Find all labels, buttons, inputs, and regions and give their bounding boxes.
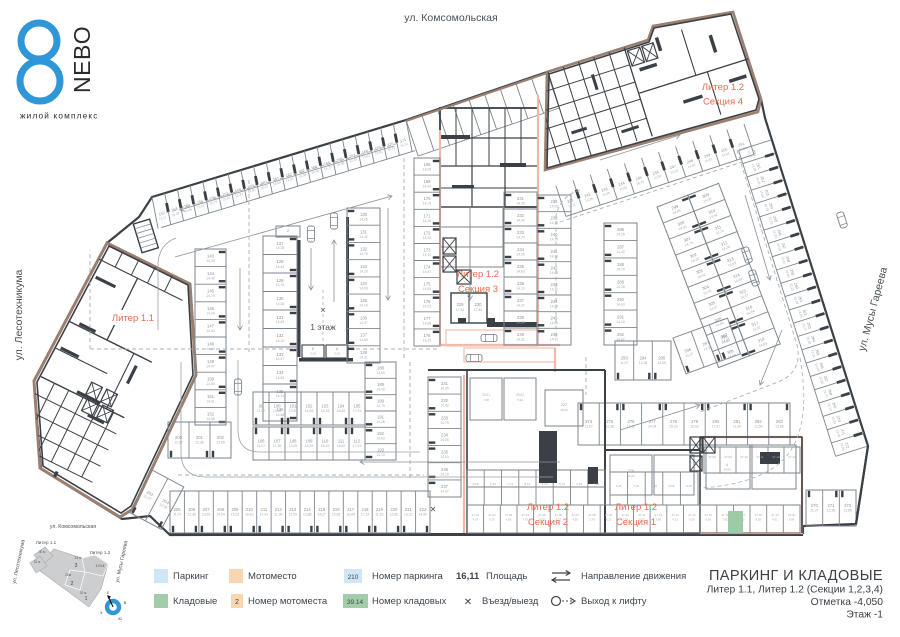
svg-text:6,53: 6,53 (506, 518, 512, 522)
svg-text:14,63: 14,63 (423, 236, 432, 240)
svg-text:5,09: 5,09 (473, 482, 479, 486)
svg-text:14,79: 14,79 (440, 421, 449, 425)
svg-text:14,94: 14,94 (305, 444, 314, 448)
svg-text:111: 111 (338, 439, 345, 444)
svg-text:290: 290 (617, 297, 625, 302)
svg-text:171: 171 (424, 213, 432, 218)
svg-text:5,36: 5,36 (689, 518, 695, 522)
svg-text:14,31: 14,31 (276, 394, 285, 398)
svg-text:Номер мотоместа: Номер мотоместа (248, 596, 328, 607)
svg-text:Въезд/выезд: Въезд/выезд (482, 596, 539, 607)
svg-text:7,08: 7,08 (483, 398, 489, 402)
svg-text:238: 238 (517, 315, 525, 320)
svg-text:14,47: 14,47 (276, 357, 285, 361)
svg-text:168: 168 (424, 162, 432, 167)
svg-text:218: 218 (362, 507, 370, 512)
svg-text:242: 242 (551, 266, 559, 271)
svg-text:Литер 1.1, Литер 1.2 (Секции 1: Литер 1.1, Литер 1.2 (Секции 1,2,3,4) (707, 585, 883, 596)
svg-text:13,65: 13,65 (843, 509, 852, 513)
svg-text:202: 202 (217, 435, 225, 440)
svg-text:147: 147 (207, 324, 215, 329)
svg-text:234: 234 (441, 433, 449, 438)
svg-text:6,11: 6,11 (606, 518, 612, 522)
svg-text:14,63: 14,63 (376, 437, 385, 441)
svg-text:14,79: 14,79 (359, 252, 368, 256)
svg-text:211: 211 (261, 507, 268, 512)
svg-text:14,10: 14,10 (440, 472, 449, 476)
svg-text:14,42: 14,42 (423, 185, 432, 189)
svg-text:279: 279 (691, 419, 699, 424)
svg-text:Номер кладовых: Номер кладовых (372, 596, 447, 607)
svg-text:14,94: 14,94 (648, 425, 657, 429)
svg-text:14,79: 14,79 (516, 236, 525, 240)
svg-text:240: 240 (551, 232, 559, 237)
svg-text:220: 220 (390, 507, 398, 512)
svg-text:294: 294 (640, 356, 648, 361)
svg-text:231: 231 (441, 381, 449, 386)
svg-text:NEBO: NEBO (69, 26, 95, 93)
svg-text:14,05: 14,05 (423, 168, 432, 172)
svg-text:232: 232 (517, 213, 525, 218)
svg-text:14,42: 14,42 (376, 388, 385, 392)
svg-text:152: 152 (207, 412, 215, 417)
svg-text:32 м: 32 м (34, 560, 41, 564)
svg-text:213: 213 (289, 507, 297, 512)
svg-text:15,33: 15,33 (321, 444, 330, 448)
svg-text:14,84: 14,84 (423, 287, 432, 291)
svg-text:14,26: 14,26 (206, 312, 215, 316)
svg-text:130: 130 (360, 212, 368, 217)
svg-text:12,36: 12,36 (273, 444, 282, 448)
svg-text:11,07: 11,07 (810, 509, 818, 513)
svg-text:24 м: 24 м (74, 556, 82, 560)
svg-text:14,79: 14,79 (423, 202, 432, 206)
svg-text:14,79: 14,79 (206, 294, 215, 298)
svg-text:281: 281 (734, 419, 742, 424)
svg-text:9,43: 9,43 (542, 482, 548, 486)
svg-text:14,84: 14,84 (516, 321, 525, 325)
svg-text:11,07: 11,07 (257, 444, 265, 448)
svg-text:244: 244 (551, 299, 559, 304)
svg-text:жилой комплекс: жилой комплекс (20, 112, 99, 121)
svg-text:13,65: 13,65 (216, 441, 225, 445)
svg-text:134: 134 (360, 281, 368, 286)
svg-text:150: 150 (207, 377, 215, 382)
svg-text:1: 1 (85, 596, 88, 602)
svg-text:47.09: 47.09 (605, 513, 613, 517)
svg-text:175: 175 (424, 282, 432, 287)
svg-text:6,59: 6,59 (706, 518, 712, 522)
svg-text:17,48: 17,48 (474, 308, 483, 312)
svg-text:14,68: 14,68 (276, 413, 285, 417)
svg-text:270: 270 (811, 503, 819, 508)
svg-text:6,15: 6,15 (576, 482, 582, 486)
svg-text:18,90: 18,90 (560, 408, 568, 412)
svg-text:13,65: 13,65 (202, 513, 211, 517)
svg-text:11,30: 11,30 (733, 425, 741, 429)
svg-text:×: × (320, 305, 325, 315)
svg-text:47.08: 47.08 (588, 513, 596, 517)
svg-text:131: 131 (360, 229, 368, 234)
svg-text:233: 233 (441, 415, 449, 420)
svg-text:14,94: 14,94 (216, 513, 225, 517)
svg-text:149: 149 (207, 359, 215, 364)
svg-text:47.02: 47.02 (488, 513, 496, 517)
svg-text:145: 145 (207, 289, 215, 294)
svg-text:9,68: 9,68 (669, 484, 675, 488)
svg-text:11,07: 11,07 (173, 513, 181, 517)
svg-text:105: 105 (354, 404, 362, 409)
svg-text:29.02: 29.02 (516, 393, 524, 397)
svg-text:99: 99 (259, 404, 264, 409)
svg-text:133: 133 (277, 352, 285, 357)
svg-text:4: 4 (726, 463, 728, 467)
svg-text:4,55: 4,55 (572, 518, 578, 522)
svg-text:5,84: 5,84 (789, 518, 795, 522)
svg-text:274: 274 (585, 419, 593, 424)
svg-text:Мотоместо: Мотоместо (248, 571, 297, 582)
svg-text:14,31: 14,31 (359, 355, 368, 359)
svg-text:47.16: 47.16 (721, 513, 729, 517)
svg-text:13,88: 13,88 (775, 425, 784, 429)
svg-text:12,36: 12,36 (187, 513, 196, 517)
svg-text:✕: ✕ (430, 505, 437, 514)
svg-text:107: 107 (274, 439, 282, 444)
svg-text:13,21: 13,21 (404, 513, 413, 517)
svg-text:289: 289 (617, 280, 625, 285)
svg-text:282: 282 (755, 419, 763, 424)
svg-text:14,10: 14,10 (359, 304, 368, 308)
svg-text:12,36: 12,36 (827, 509, 836, 513)
svg-text:14,47: 14,47 (440, 489, 449, 493)
svg-text:47.20: 47.20 (788, 513, 796, 517)
svg-text:14,62: 14,62 (627, 474, 635, 478)
svg-text:15,33: 15,33 (231, 513, 240, 517)
svg-text:14,79: 14,79 (376, 404, 385, 408)
svg-text:237: 237 (517, 298, 525, 303)
svg-text:200: 200 (175, 435, 183, 440)
svg-text:14,79: 14,79 (550, 238, 559, 242)
svg-text:143: 143 (207, 253, 215, 258)
svg-text:275: 275 (606, 419, 614, 424)
svg-text:233: 233 (517, 230, 525, 235)
svg-text:127: 127 (277, 241, 285, 246)
svg-text:227: 227 (561, 403, 567, 407)
svg-text:47.11: 47.11 (756, 455, 764, 459)
svg-text:237: 237 (441, 484, 449, 489)
svg-text:14,84: 14,84 (359, 338, 368, 342)
svg-text:Литер 1.2: Литер 1.2 (527, 502, 569, 513)
svg-text:236: 236 (441, 467, 449, 472)
svg-text:14,50: 14,50 (419, 513, 428, 517)
svg-text:14,68: 14,68 (423, 321, 432, 325)
svg-text:14,84: 14,84 (206, 382, 215, 386)
svg-text:9,06: 9,06 (334, 352, 340, 356)
svg-text:212: 212 (275, 507, 283, 512)
svg-text:238: 238 (551, 199, 559, 204)
svg-text:14,84: 14,84 (276, 376, 285, 380)
svg-text:Отметка -4,050: Отметка -4,050 (811, 597, 884, 608)
svg-text:14,63: 14,63 (516, 270, 525, 274)
svg-text:222: 222 (419, 507, 427, 512)
svg-text:172: 172 (424, 230, 432, 235)
svg-text:14,63: 14,63 (440, 455, 449, 459)
svg-text:2: 2 (71, 581, 74, 587)
svg-text:47.07: 47.07 (571, 513, 579, 517)
svg-text:151: 151 (207, 394, 215, 399)
svg-text:205: 205 (174, 507, 182, 512)
svg-text:14,26: 14,26 (359, 269, 368, 273)
svg-text:20м: 20м (65, 573, 72, 577)
svg-text:7,82: 7,82 (722, 518, 728, 522)
svg-text:20 м: 20 м (80, 591, 87, 595)
svg-text:6,40: 6,40 (490, 482, 496, 486)
svg-text:Площадь: Площадь (486, 571, 527, 582)
svg-text:15,56: 15,56 (332, 513, 341, 517)
svg-text:188: 188 (377, 366, 385, 371)
svg-text:9,38: 9,38 (756, 518, 762, 522)
svg-text:14,05: 14,05 (616, 233, 625, 237)
svg-text:129: 129 (277, 278, 285, 283)
svg-text:283: 283 (776, 419, 784, 424)
svg-text:136: 136 (360, 315, 368, 320)
svg-text:278: 278 (670, 419, 678, 424)
svg-text:5,78: 5,78 (589, 518, 595, 522)
svg-text:12,82: 12,82 (390, 513, 399, 517)
svg-text:ПАРКИНГ И КЛАДОВЫЕ: ПАРКИНГ И КЛАДОВЫЕ (709, 568, 883, 584)
svg-text:14,63: 14,63 (359, 287, 368, 291)
svg-text:214: 214 (304, 507, 312, 512)
svg-text:108: 108 (290, 439, 298, 444)
svg-text:7,71: 7,71 (507, 482, 513, 486)
svg-text:221: 221 (405, 507, 413, 512)
svg-text:14,31: 14,31 (206, 400, 215, 404)
svg-text:228: 228 (628, 469, 634, 473)
svg-text:14,26: 14,26 (423, 219, 432, 223)
svg-text:14,05: 14,05 (516, 202, 525, 206)
svg-text:100: 100 (274, 404, 282, 409)
svg-text:207: 207 (203, 507, 211, 512)
svg-text:17,91: 17,91 (353, 409, 362, 413)
svg-text:Выход к лифту: Выход к лифту (581, 596, 647, 607)
svg-text:ул. Комсомольская: ул. Комсомольская (404, 12, 497, 24)
svg-text:230: 230 (475, 302, 483, 307)
svg-text:9,80: 9,80 (656, 518, 662, 522)
svg-text:135: 135 (277, 389, 285, 394)
svg-text:47.10: 47.10 (740, 455, 748, 459)
svg-text:13,65: 13,65 (657, 361, 666, 365)
svg-text:14,05: 14,05 (376, 371, 385, 375)
svg-text:14,10: 14,10 (616, 320, 625, 324)
svg-text:130: 130 (277, 296, 285, 301)
svg-text:190: 190 (377, 398, 385, 403)
svg-text:17,24: 17,24 (361, 513, 370, 517)
svg-text:148: 148 (207, 341, 215, 346)
svg-text:14,42: 14,42 (516, 219, 525, 223)
svg-text:229: 229 (457, 302, 465, 307)
svg-text:104: 104 (338, 404, 346, 409)
svg-text:17л 4: 17л 4 (95, 564, 104, 568)
svg-text:216: 216 (333, 507, 341, 512)
svg-text:192: 192 (377, 431, 385, 436)
svg-text:287: 287 (617, 245, 625, 250)
svg-text:47.18: 47.18 (755, 513, 763, 517)
svg-text:5,30: 5,30 (489, 518, 495, 522)
svg-text:Литер 1.2: Литер 1.2 (615, 502, 657, 513)
svg-text:47.03: 47.03 (505, 513, 513, 517)
svg-text:Секция 3: Секция 3 (458, 284, 498, 295)
svg-text:47.13: 47.13 (788, 455, 796, 459)
svg-text:101: 101 (290, 404, 298, 409)
svg-text:11,07: 11,07 (174, 441, 182, 445)
svg-text:Литер 1.2: Литер 1.2 (457, 269, 499, 280)
svg-text:14,27: 14,27 (317, 513, 326, 517)
svg-text:ул. Лесотехникума: ул. Лесотехникума (13, 269, 25, 360)
svg-text:Номер паркинга: Номер паркинга (372, 571, 444, 582)
svg-text:291: 291 (617, 314, 625, 319)
svg-text:232: 232 (441, 398, 449, 403)
svg-text:236: 236 (517, 281, 525, 286)
svg-text:106: 106 (258, 439, 266, 444)
svg-text:103: 103 (322, 404, 330, 409)
svg-text:12,36: 12,36 (606, 425, 615, 429)
svg-text:174: 174 (424, 265, 432, 270)
svg-text:4,13: 4,13 (672, 518, 678, 522)
svg-text:14,47: 14,47 (516, 304, 525, 308)
svg-text:288: 288 (617, 262, 625, 267)
svg-text:39.14: 39.14 (347, 599, 364, 606)
svg-text:14,26: 14,26 (440, 438, 449, 442)
svg-text:241: 241 (551, 249, 559, 254)
svg-text:29.01: 29.01 (482, 393, 490, 397)
svg-text:14,42: 14,42 (616, 250, 625, 254)
svg-text:1 этаж: 1 этаж (310, 322, 336, 332)
svg-text:144: 144 (207, 271, 215, 276)
svg-text:14,26: 14,26 (550, 254, 559, 258)
svg-text:14,26: 14,26 (376, 420, 385, 424)
svg-text:14,84: 14,84 (550, 321, 559, 325)
svg-text:12,36: 12,36 (195, 441, 204, 445)
svg-text:Литер 1.1: Литер 1.1 (112, 313, 154, 324)
svg-text:110: 110 (322, 439, 329, 444)
svg-text:47.15: 47.15 (705, 513, 713, 517)
svg-text:292: 292 (617, 332, 625, 337)
svg-text:11,07: 11,07 (584, 425, 592, 429)
svg-text:Литер 1.2: Литер 1.2 (90, 550, 111, 555)
svg-text:14,79: 14,79 (616, 268, 625, 272)
svg-text:4,61: 4,61 (772, 518, 778, 522)
svg-text:9,06: 9,06 (310, 352, 316, 356)
svg-text:Литер 1.1: Литер 1.1 (36, 540, 57, 545)
svg-text:14,10: 14,10 (423, 253, 432, 257)
svg-text:14,63: 14,63 (616, 302, 625, 306)
svg-text:280: 280 (712, 419, 720, 424)
svg-text:Направление движения: Направление движения (581, 571, 686, 582)
svg-text:243: 243 (551, 282, 559, 287)
svg-text:112: 112 (354, 439, 361, 444)
svg-text:14,63: 14,63 (206, 329, 215, 333)
svg-text:47.01: 47.01 (472, 513, 480, 517)
svg-text:17,91: 17,91 (353, 444, 362, 448)
svg-text:132: 132 (360, 247, 368, 252)
svg-text:14,10: 14,10 (376, 453, 385, 457)
svg-text:14,42: 14,42 (276, 265, 285, 269)
svg-text:15,33: 15,33 (669, 425, 678, 429)
svg-text:14,79: 14,79 (276, 283, 285, 287)
svg-text:17,91: 17,91 (260, 513, 269, 517)
svg-text:217: 217 (347, 507, 355, 512)
svg-text:109: 109 (306, 439, 314, 444)
svg-text:14,42: 14,42 (550, 221, 559, 225)
svg-text:16,11: 16,11 (456, 571, 480, 582)
svg-text:173: 173 (424, 248, 432, 253)
svg-text:✕: ✕ (464, 597, 472, 608)
svg-text:14,15: 14,15 (423, 339, 432, 343)
svg-text:13,65: 13,65 (289, 409, 298, 413)
svg-text:239: 239 (551, 216, 559, 221)
svg-text:14,31: 14,31 (516, 338, 525, 342)
svg-text:14,47: 14,47 (423, 270, 432, 274)
svg-text:137: 137 (360, 333, 368, 338)
svg-text:189: 189 (377, 382, 385, 387)
svg-text:231: 231 (517, 196, 525, 201)
svg-text:14,05: 14,05 (276, 246, 285, 250)
svg-text:14,10: 14,10 (550, 288, 559, 292)
svg-text:з: з (100, 610, 102, 615)
svg-text:Секция 1: Секция 1 (616, 517, 656, 528)
svg-text:133: 133 (360, 264, 368, 269)
svg-text:Паркинг: Паркинг (173, 571, 209, 582)
svg-text:11,07: 11,07 (257, 409, 265, 413)
svg-text:14,63: 14,63 (550, 271, 559, 275)
svg-text:47.12: 47.12 (772, 455, 780, 459)
svg-text:134: 134 (277, 370, 285, 375)
svg-text:14,47: 14,47 (550, 304, 559, 308)
svg-text:14,31: 14,31 (550, 338, 559, 342)
svg-text:177: 177 (424, 316, 432, 321)
svg-text:286: 286 (617, 227, 625, 232)
svg-text:Этаж -1: Этаж -1 (846, 610, 883, 621)
svg-text:11,07: 11,07 (620, 361, 628, 365)
svg-text:Кладовые: Кладовые (173, 596, 217, 607)
svg-text:11,53: 11,53 (375, 513, 383, 517)
svg-text:16,62: 16,62 (245, 513, 254, 517)
svg-text:219: 219 (376, 507, 384, 512)
svg-text:2: 2 (287, 229, 289, 233)
svg-text:135: 135 (360, 298, 368, 303)
svg-text:4,07: 4,07 (473, 518, 479, 522)
svg-text:209: 209 (232, 507, 240, 512)
svg-text:14,05: 14,05 (206, 259, 215, 263)
svg-text:14,26: 14,26 (516, 253, 525, 257)
svg-text:14,31: 14,31 (423, 304, 432, 308)
svg-text:215: 215 (318, 507, 326, 512)
svg-text:14,47: 14,47 (359, 321, 368, 325)
svg-text:245: 245 (551, 316, 559, 321)
svg-text:Секция 4: Секция 4 (703, 97, 743, 108)
svg-text:14,26: 14,26 (276, 302, 285, 306)
svg-text:7,46: 7,46 (593, 482, 599, 486)
svg-text:293: 293 (621, 356, 629, 361)
svg-text:206: 206 (188, 507, 196, 512)
svg-text:3: 3 (75, 563, 78, 569)
svg-text:47.14: 47.14 (688, 513, 696, 517)
svg-text:15,33: 15,33 (321, 409, 330, 413)
svg-text:6,87: 6,87 (686, 484, 692, 488)
svg-text:14,63: 14,63 (276, 320, 285, 324)
svg-text:235: 235 (517, 264, 525, 269)
svg-text:128: 128 (277, 259, 285, 264)
